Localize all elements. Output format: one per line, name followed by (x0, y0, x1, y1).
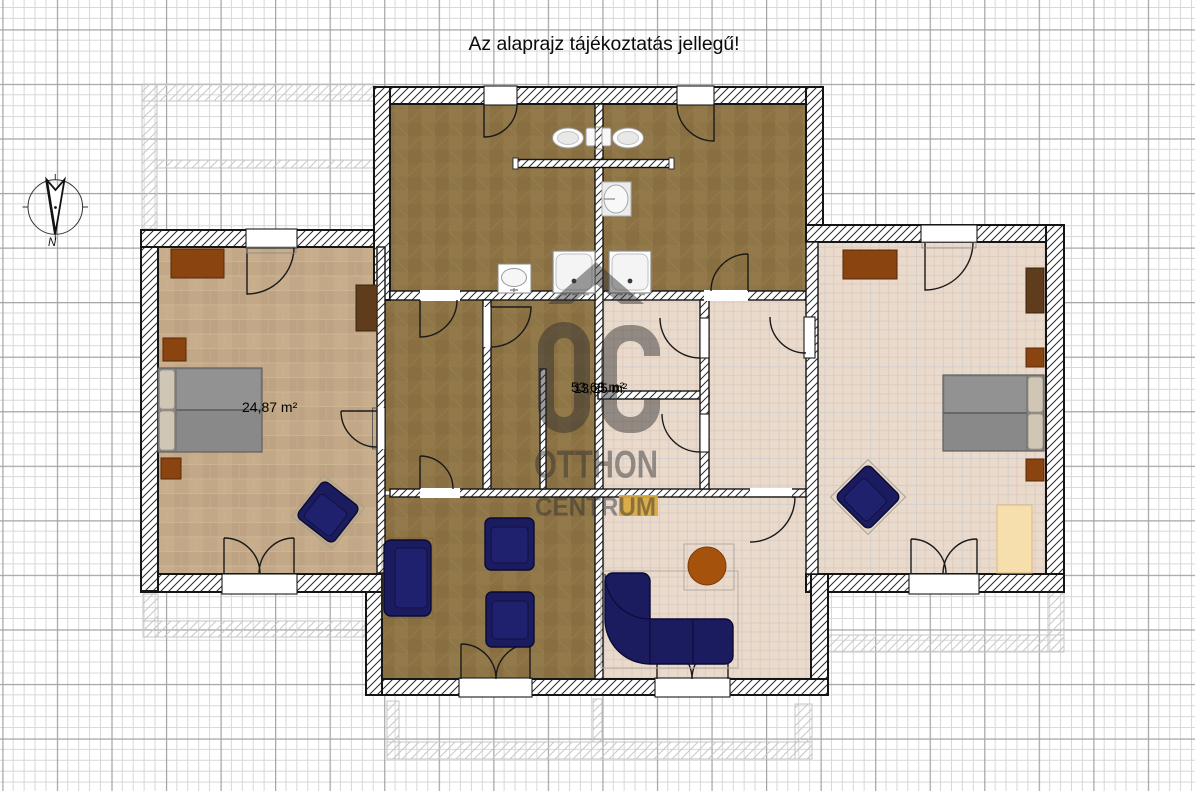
svg-text:OTTHON: OTTHON (534, 444, 658, 487)
svg-text:13,25 m²: 13,25 m² (574, 381, 628, 396)
svg-text:24,87 m²: 24,87 m² (242, 399, 298, 415)
svg-text:CENTRUM: CENTRUM (535, 492, 656, 522)
svg-text:Az alaprajz tájékoztatás jelle: Az alaprajz tájékoztatás jellegű! (469, 33, 740, 55)
svg-text:N: N (48, 237, 57, 249)
